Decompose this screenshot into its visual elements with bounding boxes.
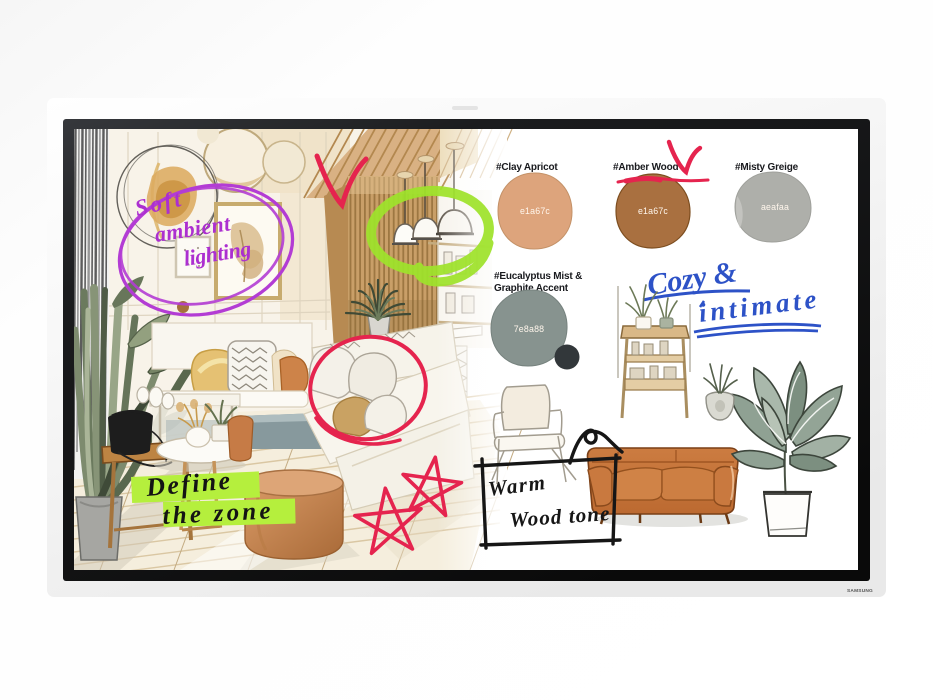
svg-text:#Misty Greige: #Misty Greige [735,162,799,173]
svg-text:e1a67c: e1a67c [520,206,550,216]
svg-text:aeafaa: aeafaa [761,202,789,212]
svg-text:SAMSUNG: SAMSUNG [847,588,873,594]
svg-text:7e8a88: 7e8a88 [514,324,545,334]
svg-text:#Amber Wood: #Amber Wood [613,162,678,173]
svg-text:the zone: the zone [162,497,271,530]
svg-text:#Eucalyptus Mist &: #Eucalyptus Mist & [494,271,582,282]
svg-text:e1a67c: e1a67c [638,206,668,216]
svg-text:#Clay Apricot: #Clay Apricot [496,162,558,173]
